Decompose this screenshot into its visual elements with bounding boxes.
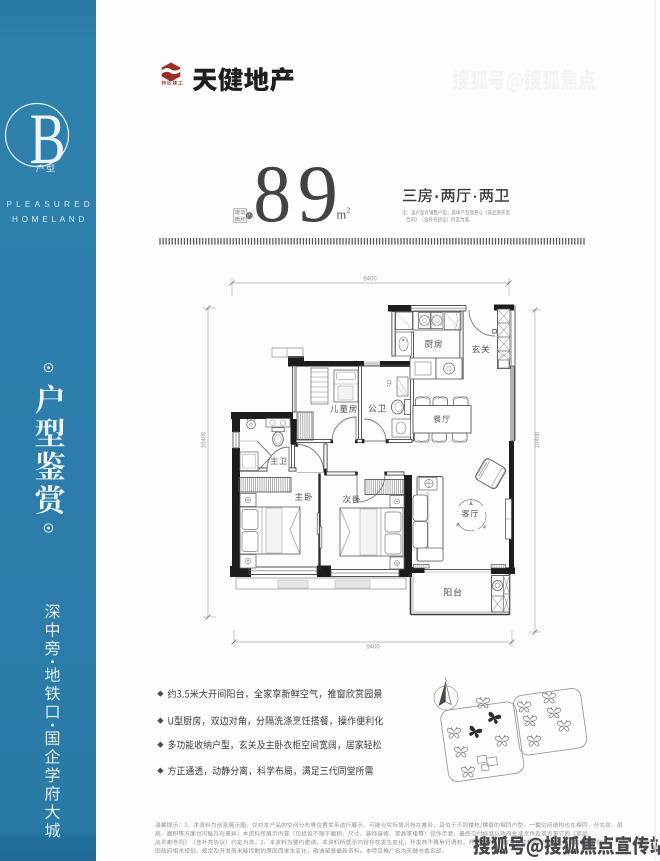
- svg-text:9: 9: [298, 148, 338, 239]
- svg-text:10400: 10400: [202, 431, 208, 448]
- svg-text:PLEASURED: PLEASURED: [7, 200, 94, 209]
- svg-text:HOMELAND: HOMELAND: [12, 215, 88, 224]
- svg-text:10400: 10400: [535, 431, 541, 448]
- svg-text:8: 8: [253, 149, 291, 240]
- svg-text:B: B: [29, 99, 65, 179]
- svg-text:m: m: [337, 208, 347, 222]
- svg-text:9400: 9400: [366, 645, 380, 651]
- svg-text:9400: 9400: [363, 277, 377, 283]
- svg-text:2: 2: [347, 207, 351, 215]
